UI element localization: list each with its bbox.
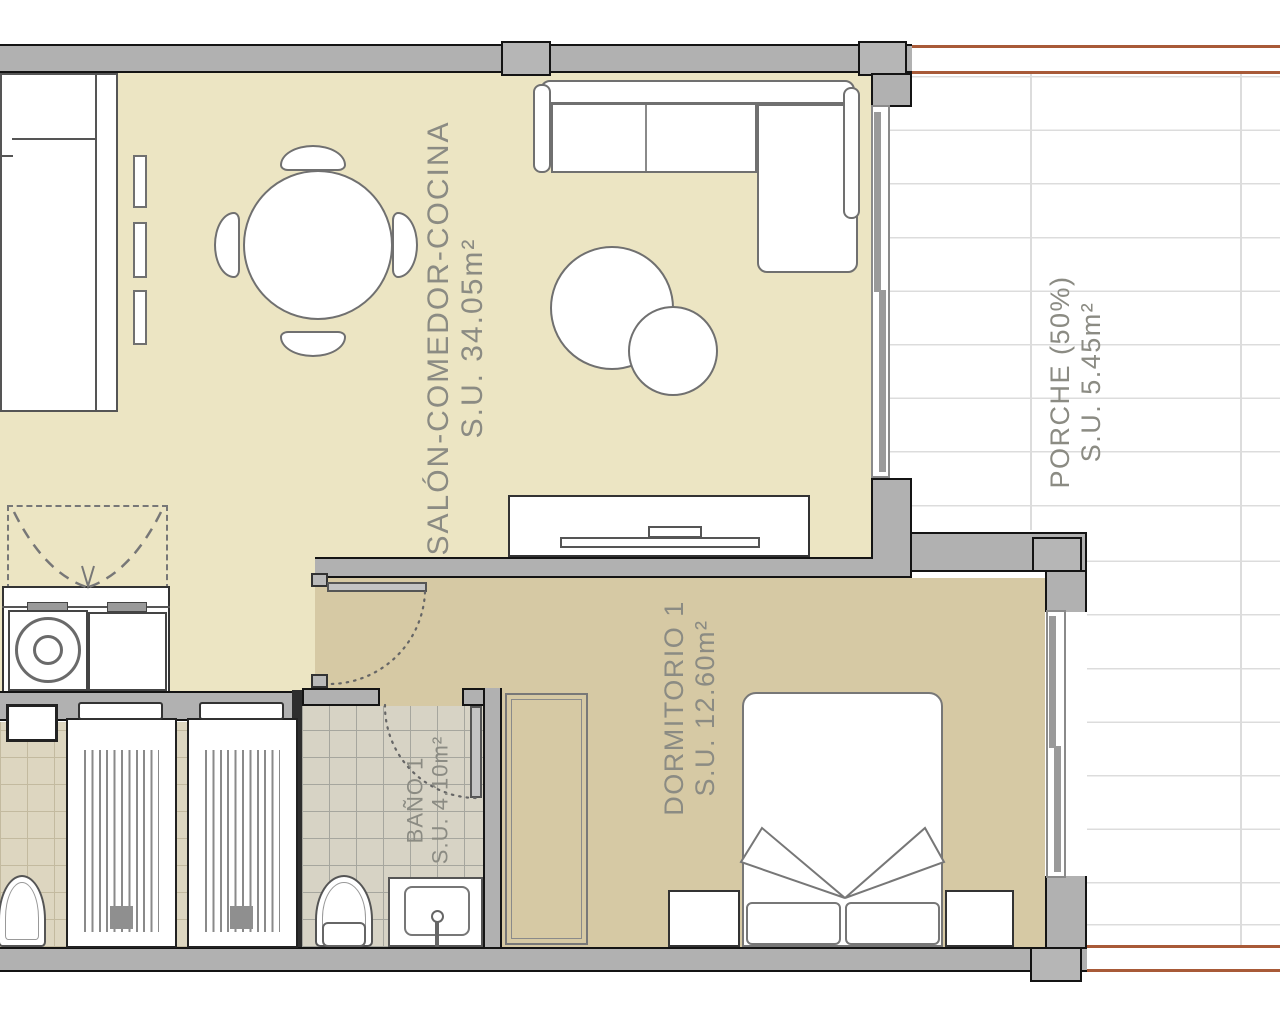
kitchen-counter (0, 73, 118, 412)
bed-foot-cushion (110, 906, 133, 929)
pillar (1030, 947, 1082, 982)
window-panel (1054, 746, 1061, 872)
storage-cabinet (88, 612, 167, 691)
toilet-bowl-line (5, 882, 39, 940)
sofa-back (540, 80, 855, 104)
room-area: S.U. 4.10m² (428, 693, 453, 908)
cabinet-handle (107, 602, 147, 612)
bed-blanket-stripes (84, 750, 159, 932)
door-jamb (311, 573, 328, 587)
nightstand (668, 890, 740, 947)
room-label-bathroom: BAÑO 1 S.U. 4.10m² (403, 693, 453, 908)
sofa-seat (551, 103, 757, 173)
dining-table (243, 170, 393, 320)
tv-screen (560, 537, 760, 548)
bed-foot-cushion (230, 906, 253, 929)
porch-tile-joint (1240, 74, 1242, 947)
faucet-stem (435, 920, 439, 947)
laundry-closet-dashed (7, 505, 168, 590)
bathroom-door-leaf (470, 706, 482, 798)
terrace-edge-line (1087, 945, 1280, 948)
toilet-tank (322, 922, 366, 947)
washing-machine-door (33, 635, 63, 665)
sofa-cushion-divider (645, 105, 647, 171)
window-panel (874, 112, 881, 292)
room-label-living: SALÓN-COMEDOR-COCINA S.U. 34.05m² (422, 118, 494, 558)
bedroom-door-leaf (327, 582, 427, 592)
wall-shelf (133, 290, 147, 345)
bed-pillow (199, 702, 284, 720)
room-name: PORCHE (50%) (1045, 252, 1076, 512)
wall-corner-living-bedroom (871, 478, 912, 578)
terrace-edge-line (912, 45, 1280, 48)
room-name: BAÑO 1 (403, 693, 428, 908)
pillar (858, 41, 907, 76)
wall-corner-porch (871, 73, 912, 107)
wardrobe (505, 693, 588, 945)
faucet (431, 910, 444, 923)
room-label-porch: PORCHE (50%) S.U. 5.45m² (1045, 252, 1109, 512)
window-panel (1049, 616, 1056, 748)
room-name: SALÓN-COMEDOR-COCINA (422, 118, 456, 558)
bed-pillow (78, 702, 163, 720)
pillar (501, 41, 551, 76)
side-shelf (6, 704, 58, 742)
sofa-arm-right (843, 87, 860, 219)
coffee-table-small (628, 306, 718, 396)
wall-top (0, 44, 912, 73)
porch-tile-joint (1030, 74, 1032, 530)
pillar (1032, 537, 1082, 572)
bed-pillow (845, 902, 940, 945)
room-area: S.U. 34.05m² (456, 118, 490, 558)
room-name: DORMITORIO 1 (659, 563, 690, 853)
kitchen-counter-divider (0, 155, 13, 157)
wall-bedroom-right-upper (1045, 572, 1087, 612)
floor-plan: SALÓN-COMEDOR-COCINA S.U. 34.05m² PORCHE… (0, 0, 1280, 1024)
wall-shelf (133, 155, 147, 208)
wall-bedroom-right-lower (1045, 876, 1087, 947)
bed-blanket-stripes (205, 750, 280, 932)
room-area: S.U. 12.60m² (690, 563, 721, 853)
wall-bathroom-top-left (302, 688, 380, 706)
bed-pillow (746, 902, 841, 945)
door-jamb (311, 674, 328, 688)
room-area: S.U. 5.45m² (1076, 252, 1107, 512)
terrace-edge-line (1087, 969, 1280, 972)
window-panel (879, 290, 886, 472)
wall-shelf (133, 222, 147, 278)
kitchen-counter-edge (95, 75, 97, 410)
terrace-side-floor (1087, 530, 1280, 947)
wall-living-bedroom (315, 557, 873, 578)
sofa-arm-left (533, 84, 551, 173)
wall-bathroom-right (483, 688, 502, 947)
kitchen-counter-divider (12, 138, 95, 140)
wardrobe-inner-line (511, 699, 582, 939)
room-label-bedroom: DORMITORIO 1 S.U. 12.60m² (659, 563, 721, 853)
nightstand (945, 890, 1014, 947)
terrace-edge-line (912, 71, 1280, 74)
wall-bottom (0, 947, 1087, 972)
